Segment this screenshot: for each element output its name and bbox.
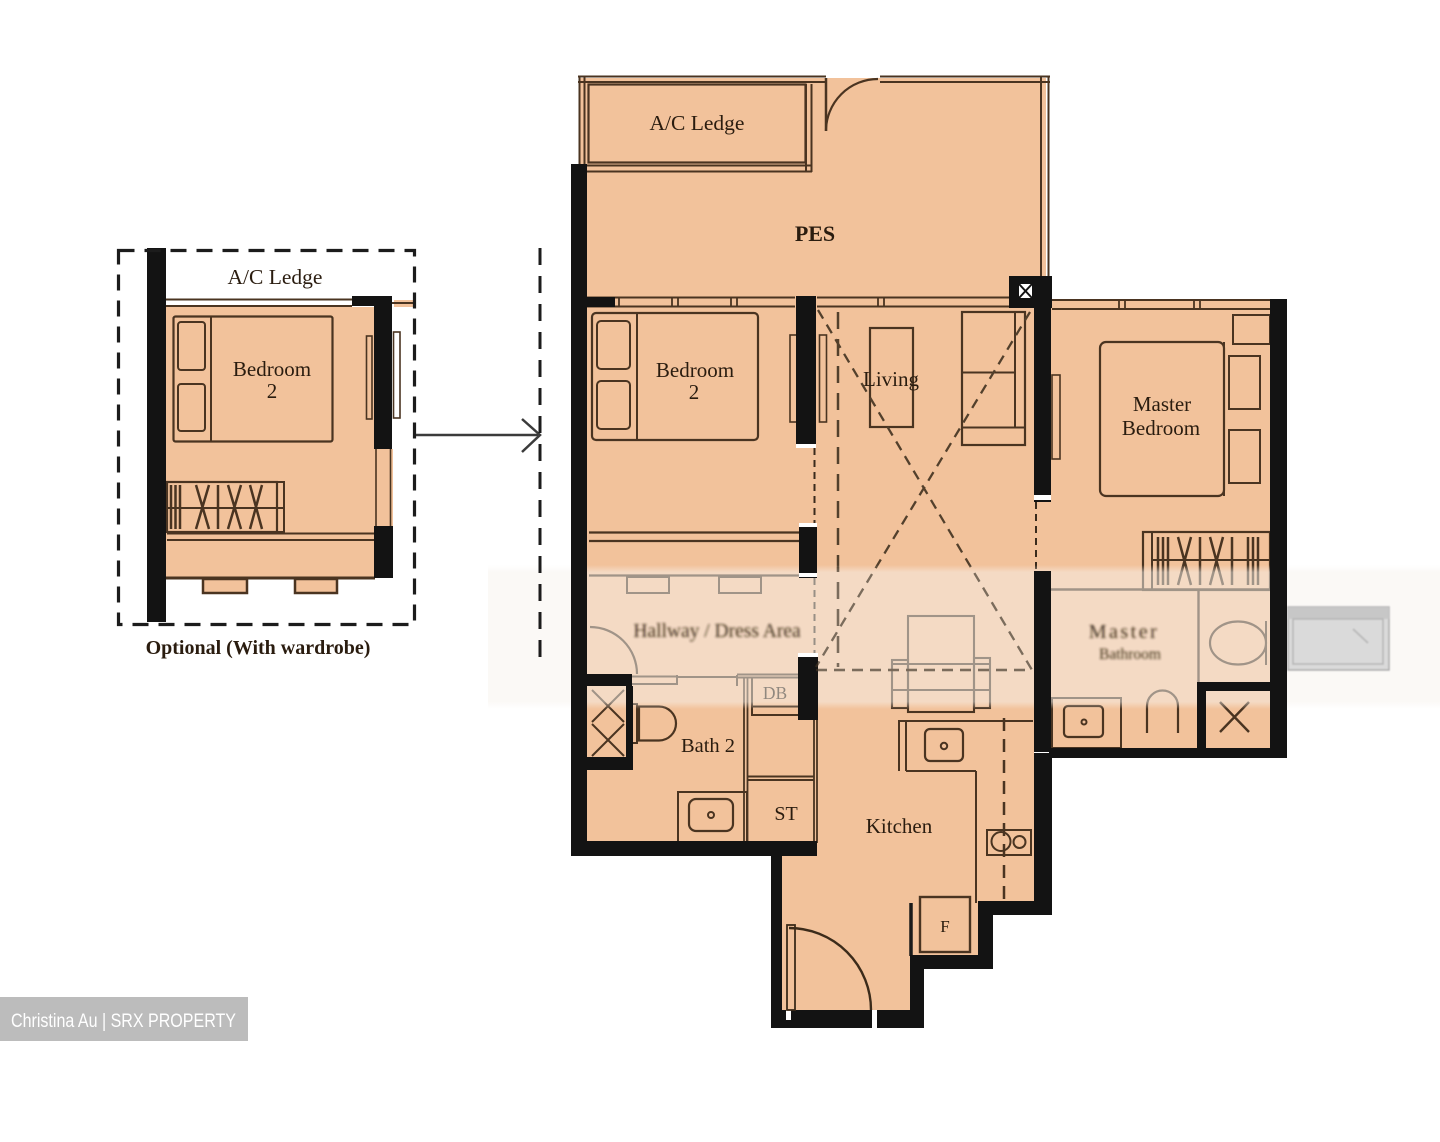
svg-text:A/C Ledge: A/C Ledge [228,265,323,289]
svg-text:Master: Master [1089,621,1160,643]
svg-text:Kitchen: Kitchen [866,814,933,838]
svg-text:Master: Master [1133,392,1191,416]
svg-text:Living: Living [863,367,919,391]
svg-text:ST: ST [774,803,797,825]
svg-text:F: F [940,917,949,936]
svg-text:Bath 2: Bath 2 [681,735,735,757]
svg-text:PES: PES [795,221,835,246]
svg-text:Bathroom: Bathroom [1099,646,1161,663]
svg-text:Bedroom: Bedroom [233,357,311,381]
svg-text:A/C Ledge: A/C Ledge [650,111,745,135]
svg-text:Bedroom: Bedroom [1122,416,1200,440]
svg-text:Hallway / Dress Area: Hallway / Dress Area [633,621,801,642]
svg-text:Optional (With wardrobe): Optional (With wardrobe) [146,637,371,659]
svg-text:2: 2 [267,379,278,403]
svg-text:Christina Au | SRX PROPERTY: Christina Au | SRX PROPERTY [11,1011,236,1032]
svg-text:2: 2 [689,380,700,404]
svg-text:Bedroom: Bedroom [656,358,734,382]
